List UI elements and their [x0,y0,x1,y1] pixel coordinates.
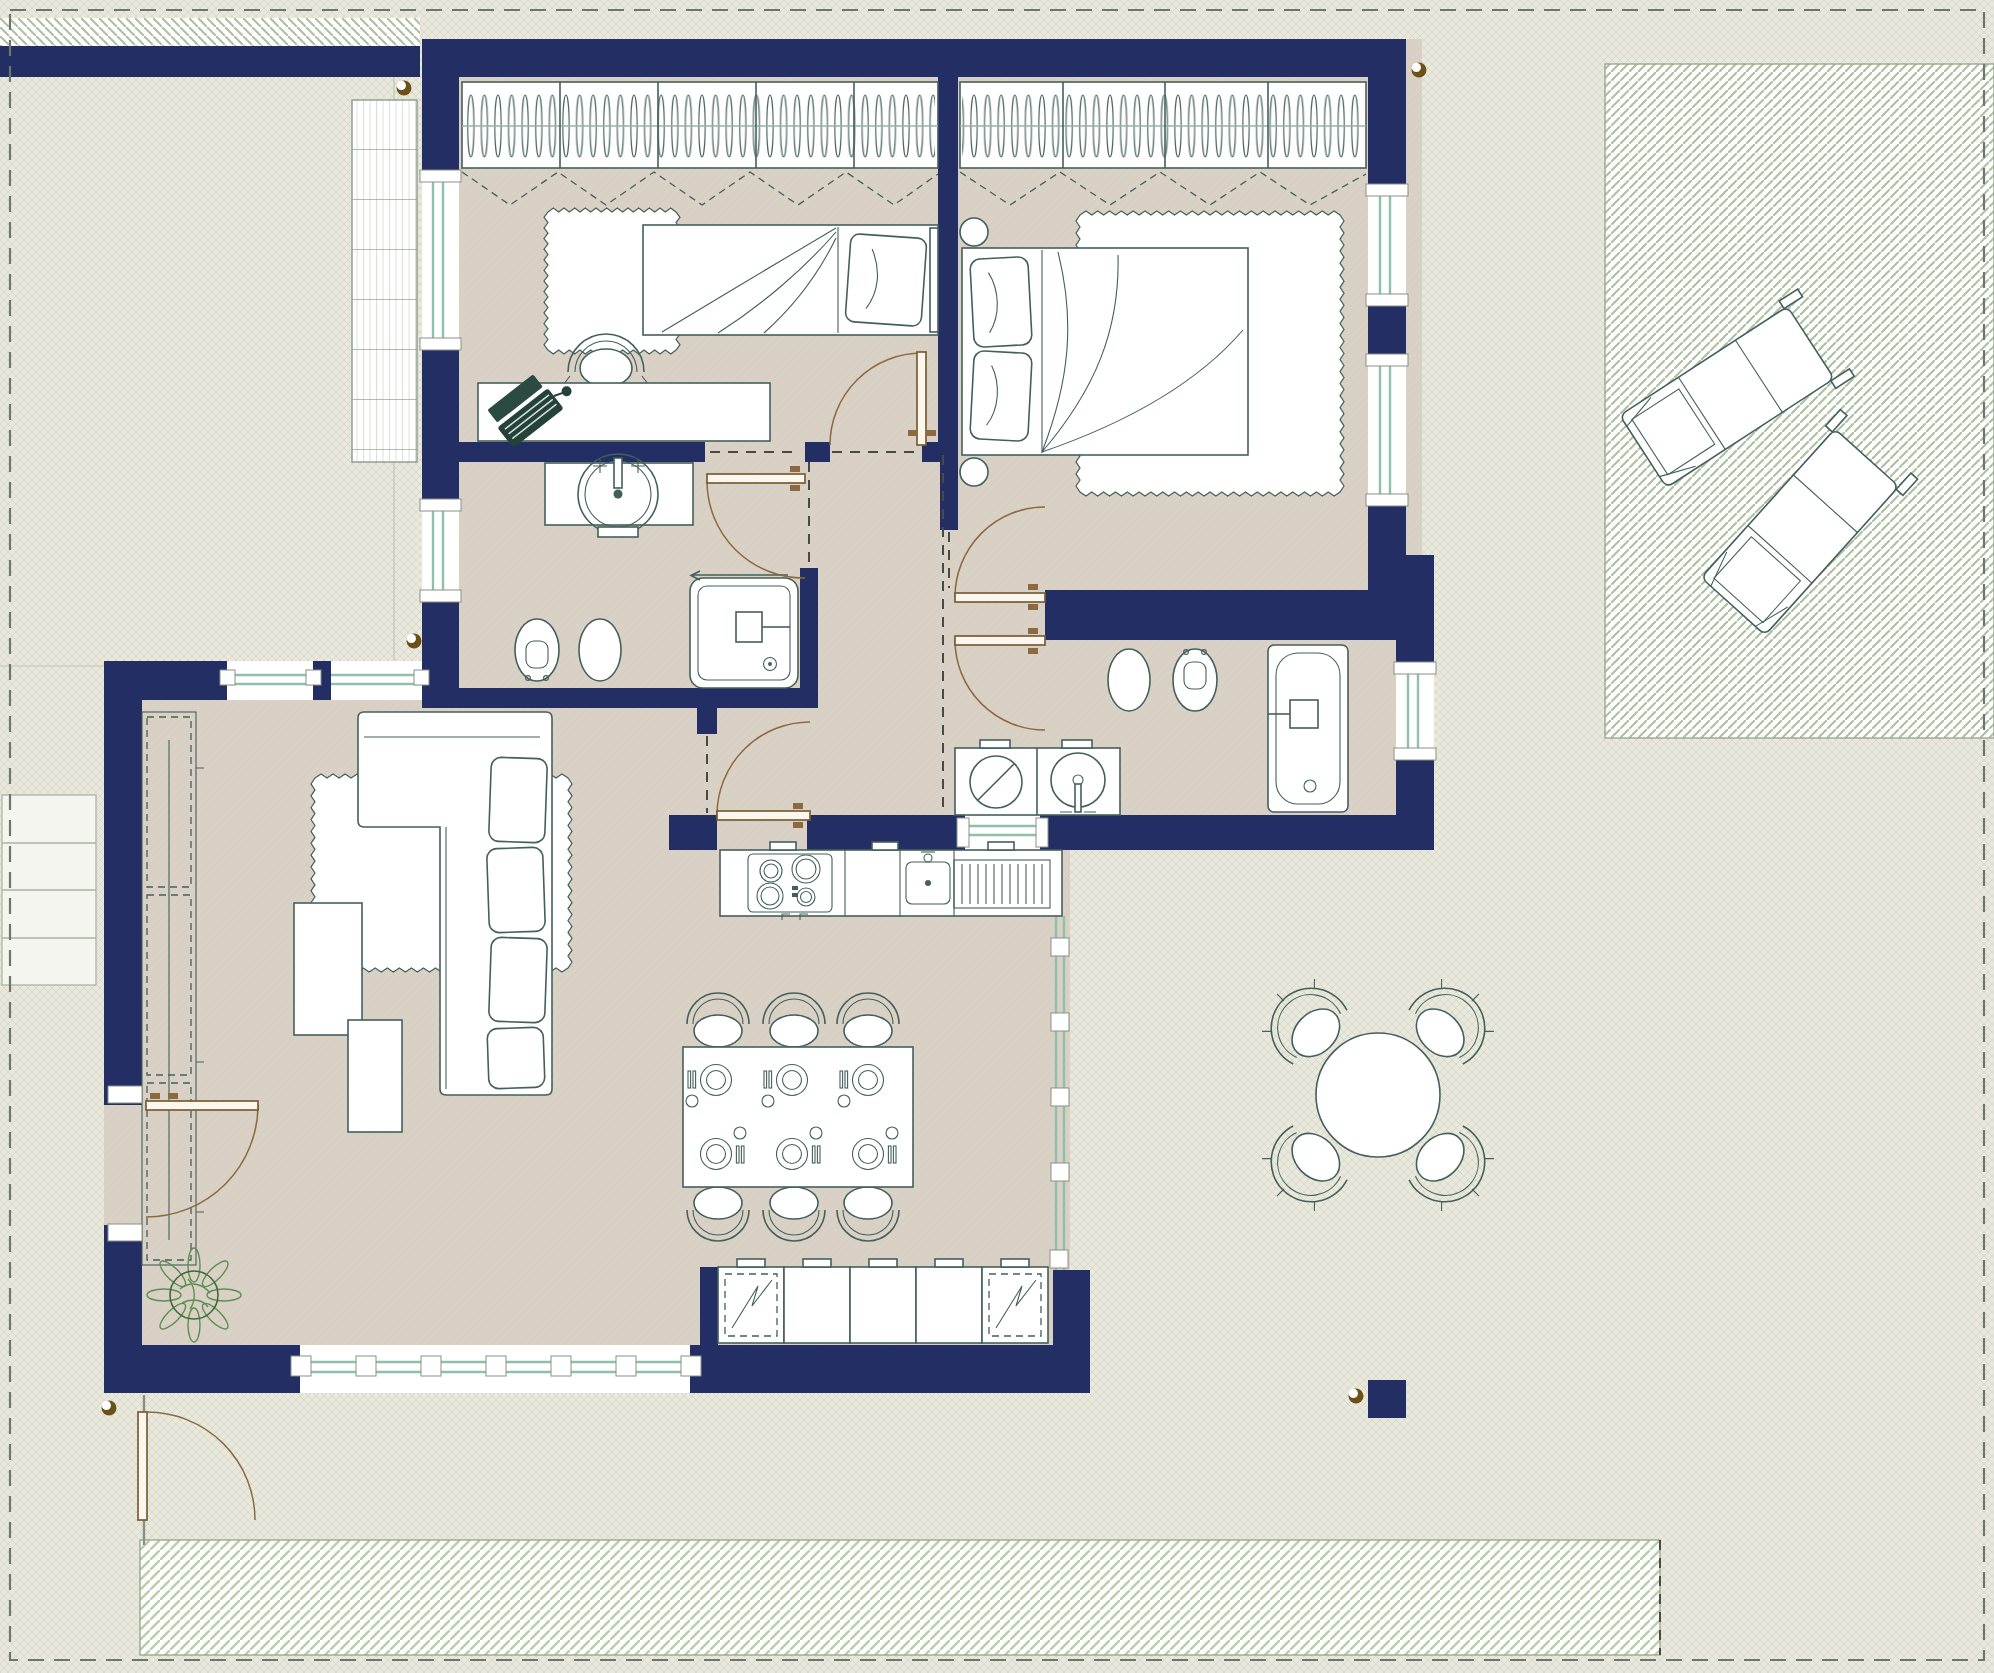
toilet [1173,649,1217,711]
french-window [331,661,422,700]
top-right-garden [1605,64,1994,738]
window [1366,354,1408,506]
bathtub [1268,645,1348,812]
coffee-table [348,1020,402,1132]
vanity-basin [545,454,693,537]
french-window [227,661,313,700]
window [420,170,461,350]
trellis [352,100,417,462]
bidet [1108,649,1150,711]
floor-plan-page [0,0,1994,1673]
kitchen-counter [720,842,1062,920]
single-bed [643,225,938,335]
shower [690,571,798,688]
corner-dot [102,1401,117,1416]
window [1366,184,1408,306]
double-bed [962,248,1248,455]
glazed-south-wall [291,1345,701,1393]
corner-dot [407,634,422,649]
corner-dot [397,81,412,96]
appliance-cabinet-row [718,1259,1048,1343]
bedside-table [960,218,988,246]
coffee-table [294,903,362,1035]
garden-walkway [140,1540,1660,1655]
bedside-table [960,458,988,486]
bidet [579,619,621,681]
toilet [515,619,559,681]
terrace-pier [1368,1380,1406,1418]
window [420,499,461,602]
corner-dot [1412,63,1427,78]
entry-steps [2,795,96,985]
corner-dot [1349,1389,1364,1404]
floor-plan-drawing [0,0,1994,1673]
dining-set [683,993,913,1241]
outdoor-table [1316,1033,1440,1157]
laundry-counter [955,740,1120,815]
window [1394,662,1436,760]
